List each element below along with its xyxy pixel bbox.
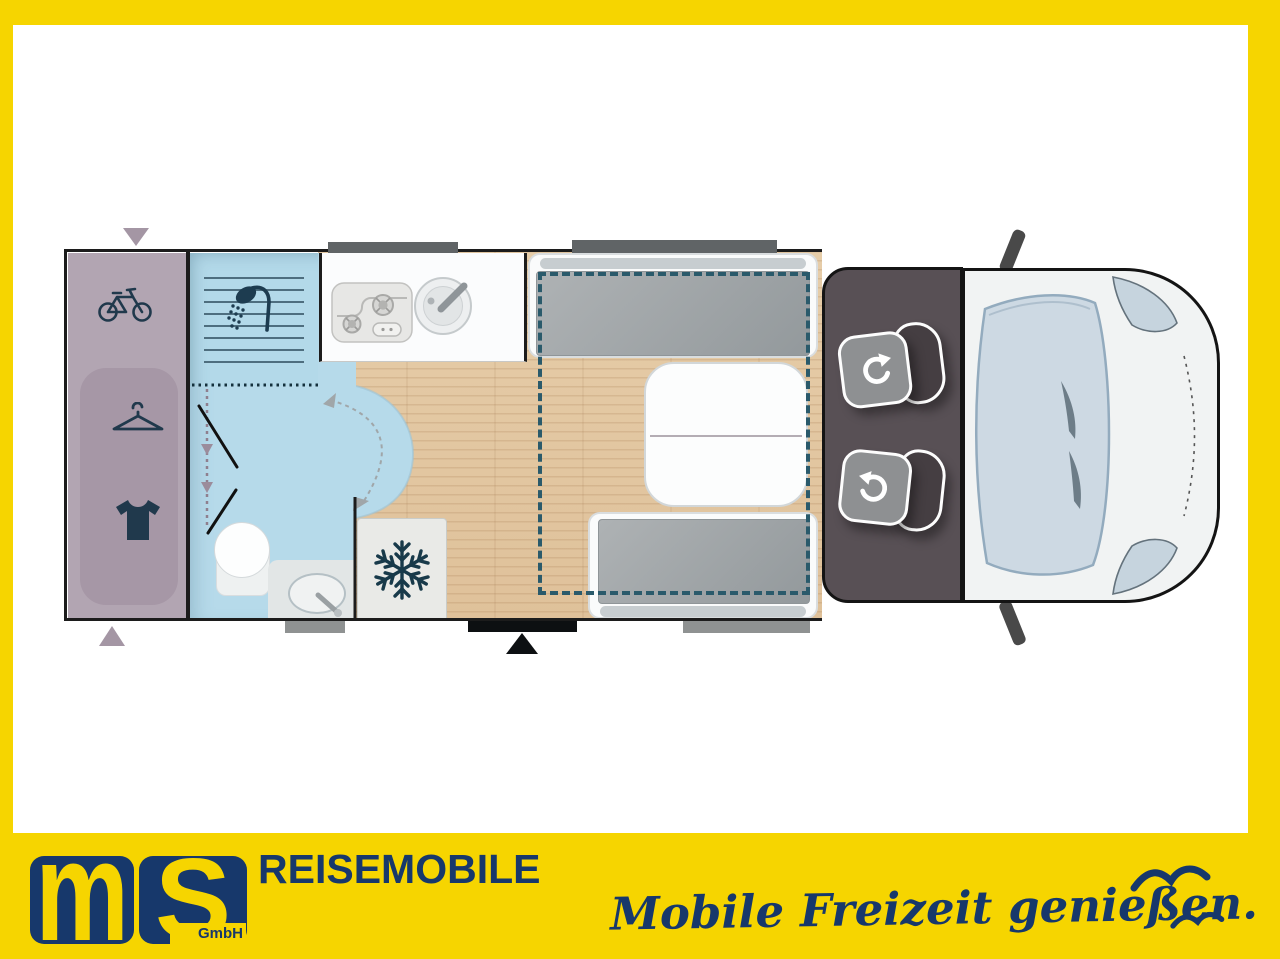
swivel-seat-passenger xyxy=(836,442,952,539)
hanger-icon xyxy=(111,402,165,434)
bathroom-sink xyxy=(288,573,346,614)
frame-top xyxy=(0,0,1280,25)
snowflake-icon xyxy=(371,535,433,605)
listing-image: m S GmbH REISEMOBILE Mobile Freizeit gen… xyxy=(0,0,1280,959)
side-mirror-left xyxy=(998,228,1027,274)
garage-hatch-arrow-bottom-icon xyxy=(99,626,125,646)
swivel-seat-icon xyxy=(854,349,896,391)
toilet xyxy=(214,522,270,578)
garage-wall xyxy=(186,251,190,621)
swivel-seat-icon xyxy=(854,467,896,509)
drop-down-bed-outline xyxy=(538,272,810,595)
reisemobile-wordmark: REISEMOBILE xyxy=(258,846,540,893)
vehicle-front-details xyxy=(965,271,1217,600)
bicycle-icon xyxy=(96,283,154,323)
seat-bolster xyxy=(600,606,806,617)
shirt-icon xyxy=(114,498,162,542)
seagull-icon xyxy=(1168,906,1226,934)
roof-vent-lounge xyxy=(572,240,777,253)
cab-floor xyxy=(822,267,963,603)
seat-cushion xyxy=(836,329,914,410)
kitchen-sink xyxy=(414,277,472,335)
ms-logo-letter-m: m xyxy=(35,856,128,944)
entry-arrow-icon xyxy=(506,633,538,654)
frame-left xyxy=(0,25,13,833)
kitchen-sink-basin xyxy=(423,286,463,326)
frame-right xyxy=(1248,25,1280,833)
entry-door xyxy=(468,621,577,632)
fridge xyxy=(357,518,447,621)
ms-logo-block-m: m xyxy=(30,856,134,944)
garage-hatch-arrow-top-icon xyxy=(123,228,149,246)
shower-icon xyxy=(222,280,280,338)
vehicle-front xyxy=(962,268,1220,603)
seat-cushion xyxy=(837,448,914,528)
seagull-icon xyxy=(1128,858,1212,900)
exterior-hatch-right xyxy=(683,621,810,633)
stove-icon xyxy=(331,282,413,343)
gmbh-label: GmbH xyxy=(170,923,246,944)
swivel-seat-driver xyxy=(835,319,953,418)
roof-vent-kitchen xyxy=(328,242,458,253)
exterior-hatch-left xyxy=(285,621,345,633)
side-mirror-right xyxy=(998,599,1027,647)
seat-bolster xyxy=(540,258,806,269)
